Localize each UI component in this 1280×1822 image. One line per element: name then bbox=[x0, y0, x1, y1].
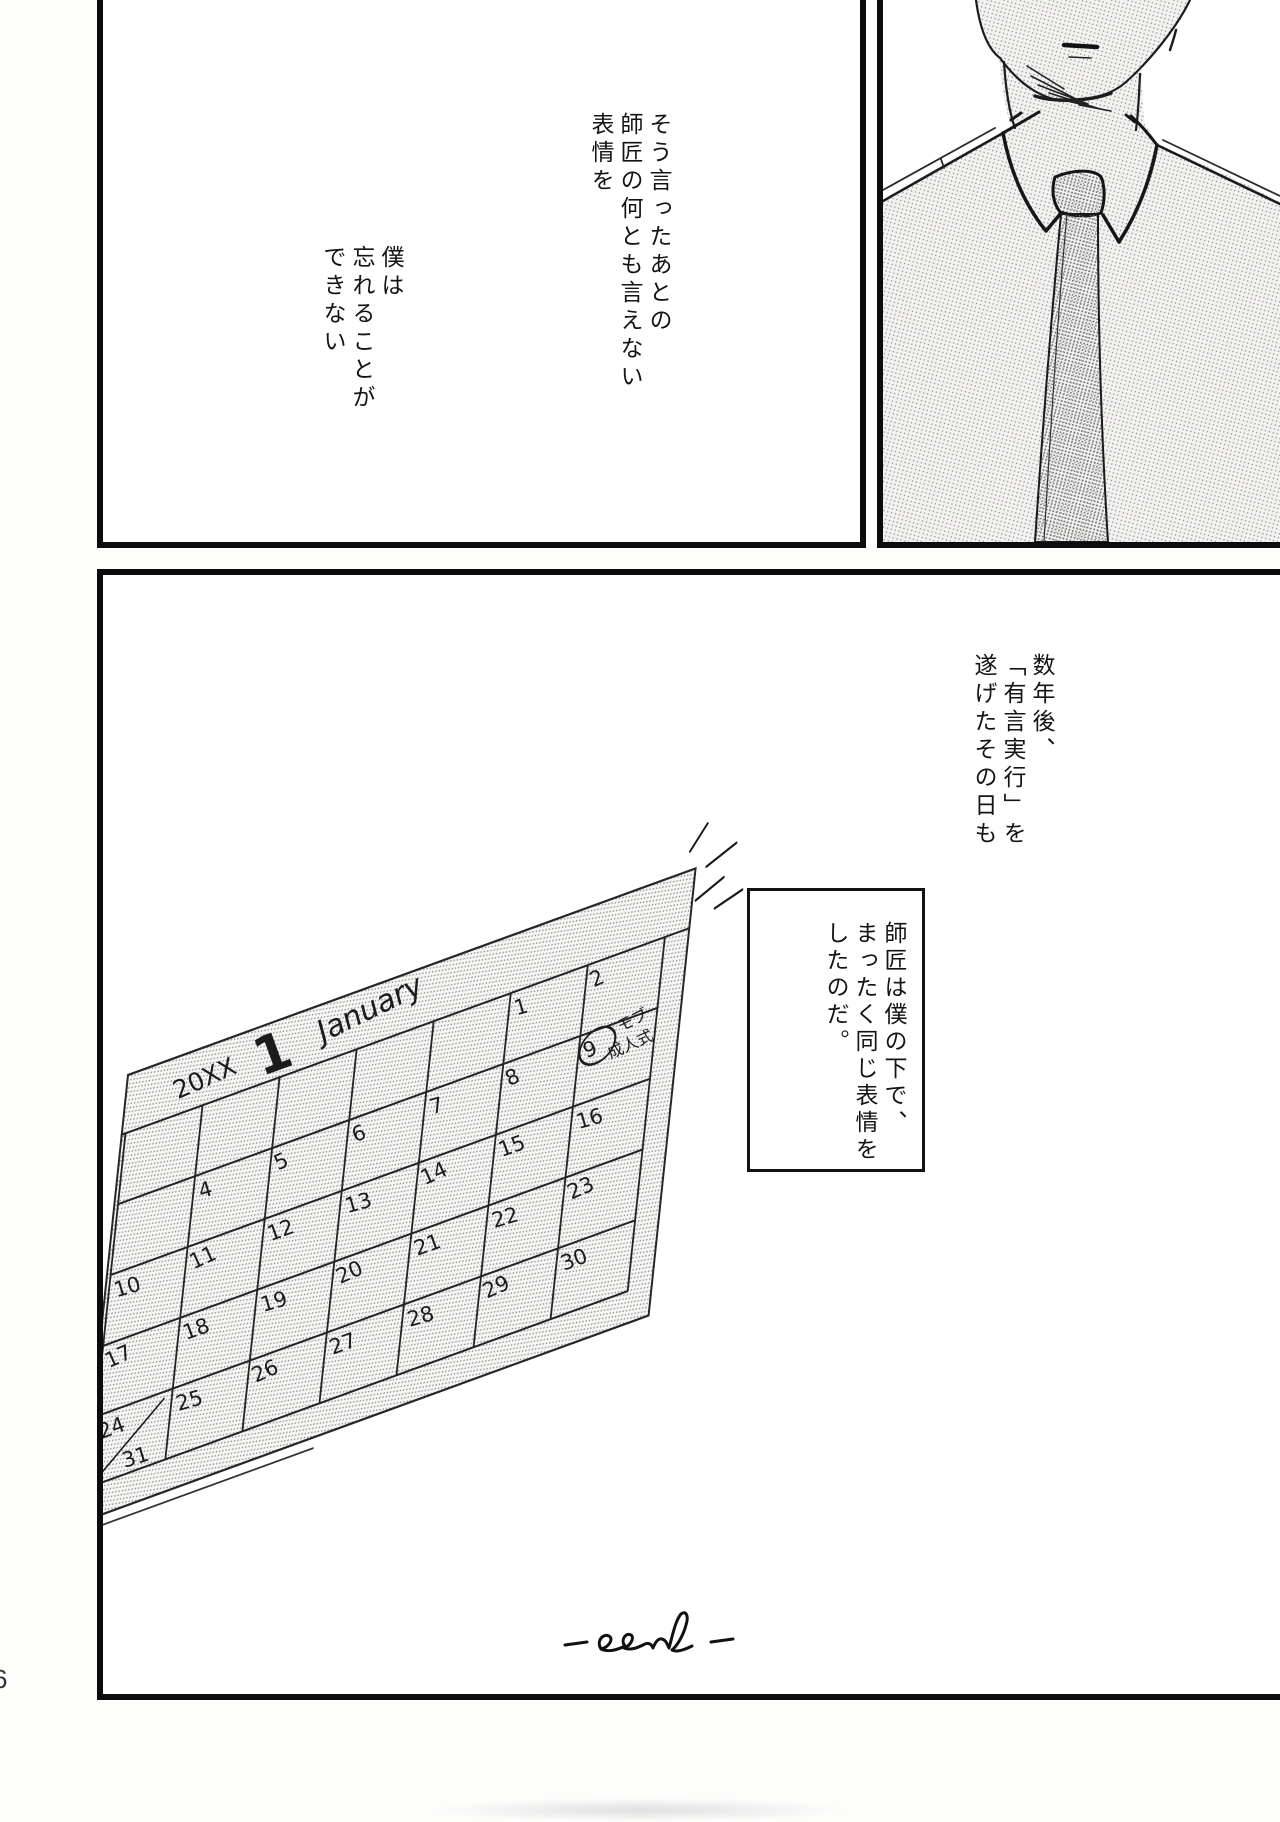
lower-lip-line bbox=[1069, 57, 1091, 58]
narration-box-text: 師匠は僕の下で、 まったく同じ表情を したのだ。 bbox=[813, 921, 908, 1171]
narration-line: そう言ったあとの bbox=[644, 112, 673, 422]
calendar-paper: 20XX 1 January 1245678910111213141516171… bbox=[97, 776, 774, 1591]
narration-line: できない bbox=[318, 245, 347, 475]
narration-top-left-left-group: 僕は 忘れることが できない bbox=[310, 245, 405, 475]
panel-bottom: 数年後、 「有言実行」を 遂げたその日も 師匠は僕の下で、 まったく同じ表情を … bbox=[97, 569, 1280, 1700]
narration-bottom-right-group: 数年後、 「有言実行」を 遂げたその日も bbox=[961, 653, 1056, 853]
narration-line: したのだ。 bbox=[821, 921, 850, 1171]
narration-top-left-right-group: そう言ったあとの 師匠の何とも言えない 表情を bbox=[578, 112, 673, 422]
scan-smudge bbox=[430, 1798, 850, 1822]
panel-top-left: そう言ったあとの 師匠の何とも言えない 表情を 僕は 忘れることが できない bbox=[97, 0, 866, 548]
manga-page: そう言ったあとの 師匠の何とも言えない 表情を 僕は 忘れることが できない bbox=[0, 0, 1280, 1822]
page-number: 6 bbox=[0, 1664, 7, 1695]
narration-line: まったく同じ表情を bbox=[850, 921, 879, 1171]
narration-line: 僕は bbox=[376, 245, 405, 475]
end-mark: -end- bbox=[553, 1605, 763, 1679]
end-mark-stroke bbox=[565, 1613, 733, 1651]
mouth-icon bbox=[1064, 45, 1097, 47]
panel-top-right bbox=[877, 0, 1280, 548]
narration-line: 忘れることが bbox=[347, 245, 376, 475]
narration-box: 師匠は僕の下で、 まったく同じ表情を したのだ。 bbox=[747, 888, 925, 1172]
calendar-sheet-tone bbox=[97, 868, 696, 1522]
calendar: 20XX 1 January 1245678910111213141516171… bbox=[97, 868, 696, 1522]
narration-line: 表情を bbox=[586, 112, 615, 422]
narration-line: 師匠の何とも言えない bbox=[615, 112, 644, 422]
tie-knot bbox=[1053, 171, 1105, 216]
narration-line: 「有言実行」を bbox=[998, 653, 1027, 853]
narration-line: 遂げたその日も bbox=[969, 653, 998, 853]
emphasis-dashes bbox=[683, 808, 751, 920]
head-shape-tone bbox=[976, 0, 1189, 126]
narration-line: 数年後、 bbox=[1027, 653, 1056, 853]
narration-line: 師匠は僕の下で、 bbox=[879, 921, 908, 1171]
suit-and-tie-illustration bbox=[883, 0, 1280, 542]
